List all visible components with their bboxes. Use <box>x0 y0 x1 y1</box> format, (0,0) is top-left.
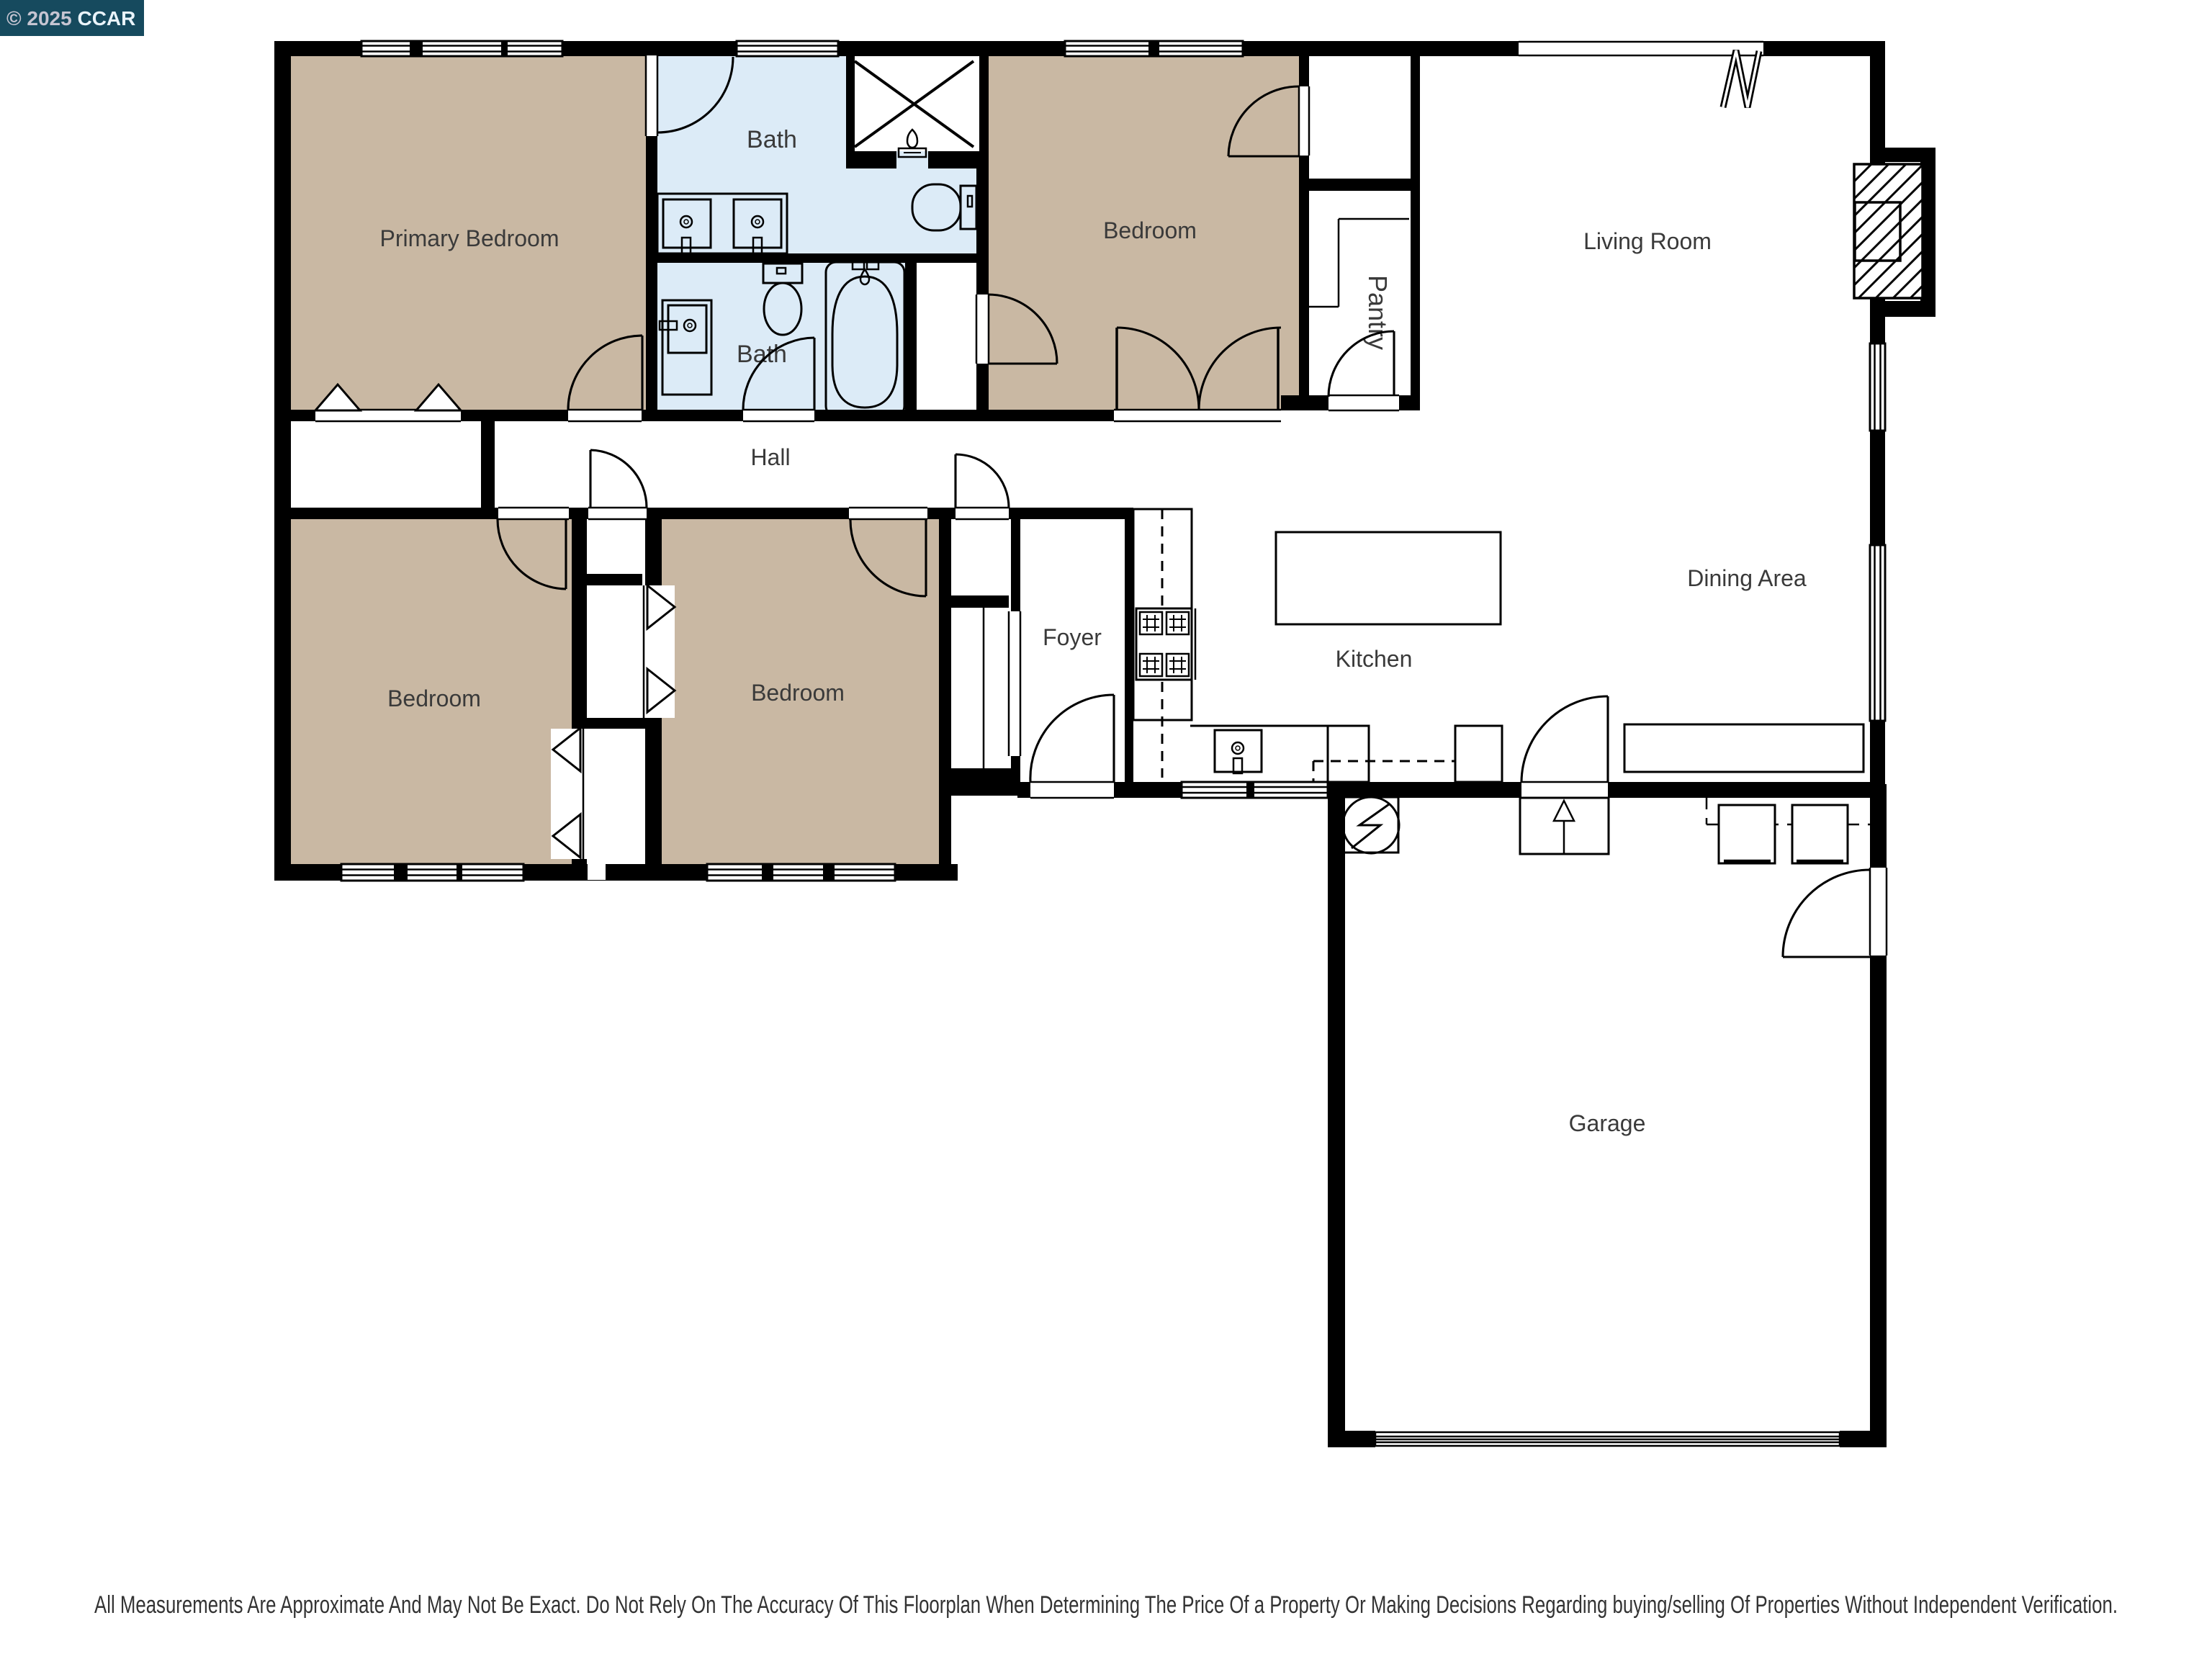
svg-text:All Measurements Are Approxima: All Measurements Are Approximate And May… <box>94 1591 2118 1619</box>
svg-text:Bath: Bath <box>747 126 797 153</box>
svg-text:Hall: Hall <box>750 444 790 470</box>
svg-text:Foyer: Foyer <box>1043 624 1102 650</box>
svg-text:Bedroom: Bedroom <box>751 680 845 706</box>
svg-text:Dining Area: Dining Area <box>1687 565 1807 591</box>
svg-text:Primary Bedroom: Primary Bedroom <box>380 225 559 251</box>
svg-text:© 2025 CCAR: © 2025 CCAR <box>6 7 135 30</box>
svg-text:Garage: Garage <box>1569 1110 1646 1136</box>
svg-text:Bedroom: Bedroom <box>1103 217 1197 243</box>
svg-text:Bedroom: Bedroom <box>387 685 481 711</box>
svg-text:Living Room: Living Room <box>1583 228 1712 254</box>
svg-text:Bath: Bath <box>737 341 787 368</box>
svg-text:Pantry: Pantry <box>1363 275 1393 350</box>
svg-text:Kitchen: Kitchen <box>1336 646 1413 672</box>
